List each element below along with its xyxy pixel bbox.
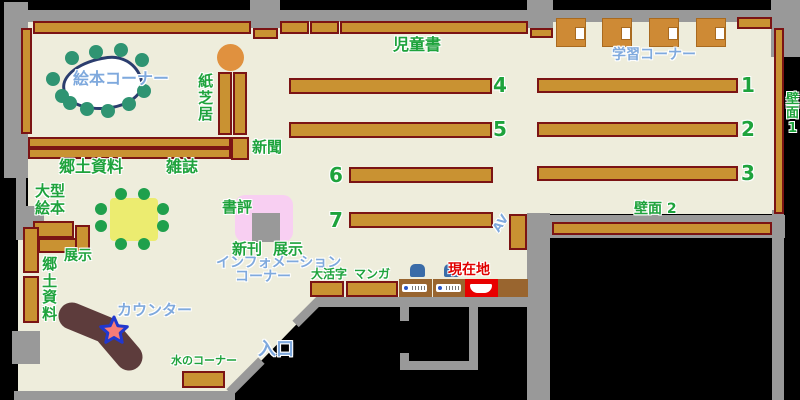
- opac-desk: [399, 279, 432, 297]
- library-floor-map: 絵本コーナー 紙芝居 新聞 児童書 学習コーナー 壁面1 郷土資料 雑誌 大型絵…: [0, 0, 800, 400]
- label-large-print: 大活字: [311, 268, 347, 281]
- shelf-manga: [346, 281, 398, 297]
- table-seat-dot: [95, 220, 107, 232]
- label-wall-2: 壁面 2: [634, 202, 677, 217]
- label-water-corner: 水のコーナー: [171, 355, 237, 367]
- shelf-number-2: 2: [741, 118, 755, 140]
- label-current-location: 現在地: [448, 263, 490, 278]
- wall-bottom: [14, 391, 235, 400]
- shelf-newspaper: [231, 137, 249, 160]
- study-desk: [556, 18, 586, 47]
- study-desk: [696, 18, 726, 47]
- label-wall-1: 壁面1: [785, 93, 800, 136]
- study-chair: [668, 27, 678, 40]
- seat-dot: [65, 51, 79, 65]
- shelf-large-print: [310, 281, 344, 297]
- label-manga: マンガ: [354, 268, 390, 281]
- shelf-top-wall-b: [280, 21, 309, 34]
- wall-under-desks: [318, 297, 550, 307]
- chair: [410, 264, 425, 277]
- label-information-line2: コーナー: [235, 270, 291, 285]
- shelf-top-wall-c: [310, 21, 339, 34]
- shelf-large-picture-books-1: [33, 221, 74, 238]
- wall-vestibule-left-upper: [400, 306, 409, 321]
- study-chair: [621, 27, 631, 40]
- shelf-4: [289, 78, 492, 94]
- seat-dot: [46, 72, 60, 86]
- seat-dot: [135, 53, 149, 67]
- table-seat-dot: [115, 238, 127, 250]
- label-magazines: 雑誌: [166, 158, 198, 176]
- label-large-picture-books: 大型絵本: [35, 183, 68, 216]
- shelf-water-corner: [182, 371, 225, 388]
- power-led-icon: [438, 286, 442, 290]
- seat-dot: [63, 96, 77, 110]
- shelf-top-wall-a: [33, 21, 251, 34]
- label-display-left: 展示: [64, 249, 92, 264]
- opac-terminal: [436, 284, 461, 292]
- table-seat-dot: [138, 238, 150, 250]
- seat-dot: [101, 104, 115, 118]
- opac-terminal: [402, 284, 427, 292]
- shelf-number-7: 7: [329, 209, 343, 231]
- shelf-top-wall-d: [340, 21, 528, 34]
- label-newspaper: 新聞: [252, 139, 282, 156]
- kamishibai-stool: [217, 44, 244, 71]
- label-counter: カウンター: [117, 302, 192, 319]
- wall-right-vertical: [527, 213, 550, 400]
- table-seat-dot: [157, 203, 169, 215]
- shelf-number-6: 6: [329, 164, 343, 186]
- power-led-icon: [404, 286, 408, 290]
- wall-left-thin: [16, 178, 26, 208]
- current-location-glyph: [470, 284, 492, 293]
- table-seat-dot: [157, 220, 169, 232]
- seat-dot: [80, 102, 94, 116]
- table-seat-dot: [95, 203, 107, 215]
- study-desk: [602, 18, 632, 47]
- shelf-top-right: [737, 17, 772, 29]
- shelf-number-1: 1: [741, 74, 755, 96]
- seat-dot: [122, 97, 136, 111]
- vents-icon: [446, 286, 459, 290]
- seat-dot: [89, 45, 103, 59]
- shelf-number-4: 4: [493, 74, 507, 96]
- new-books-display-table: [252, 213, 280, 242]
- shelf-under-pillar-2: [530, 28, 553, 38]
- shelf-3: [537, 166, 738, 181]
- shelf-wall-2: [552, 222, 772, 235]
- shelf-kamishibai-1: [218, 72, 232, 135]
- study-desk: [649, 18, 679, 47]
- label-picture-book-corner: 絵本コーナー: [73, 70, 169, 88]
- shelf-left-vertical: [21, 28, 32, 134]
- shelf-under-pillar-1: [253, 28, 278, 39]
- table-seat-dot: [115, 188, 127, 200]
- shelf-2: [537, 122, 738, 137]
- vents-icon: [412, 286, 425, 290]
- shelf-6: [349, 167, 493, 183]
- current-location-marker: [465, 279, 498, 297]
- shelf-local-materials-left-1: [23, 227, 39, 273]
- reading-table: [110, 198, 158, 241]
- shelf-local-materials-left-2: [23, 276, 39, 323]
- shelf-7: [349, 212, 493, 228]
- label-local-materials-left: 郷土資料: [41, 256, 58, 322]
- label-local-materials-top: 郷土資料: [59, 158, 123, 176]
- wall-right-strip: [772, 210, 784, 400]
- opac-desk: [433, 279, 465, 297]
- shelf-wall-1: [774, 28, 784, 214]
- label-book-reviews: 書評: [222, 199, 252, 216]
- label-study-corner: 学習コーナー: [612, 48, 696, 63]
- wall-pillar-top-1: [250, 0, 280, 28]
- label-childrens-books: 児童書: [393, 36, 441, 54]
- wall-pillar-top-2: [527, 0, 553, 28]
- wall-vestibule-bottom: [400, 361, 478, 370]
- seat-dot: [114, 43, 128, 57]
- study-chair: [715, 27, 725, 40]
- label-kamishibai: 紙芝居: [197, 73, 214, 123]
- side-desk: [498, 279, 528, 297]
- shelf-number-5: 5: [493, 118, 507, 140]
- study-chair: [575, 27, 585, 40]
- shelf-number-3: 3: [741, 162, 755, 184]
- label-entrance: 入口: [258, 340, 294, 360]
- shelf-local-materials-row1: [28, 137, 231, 148]
- shelf-5: [289, 122, 492, 138]
- shelf-1: [537, 78, 738, 93]
- shelf-kamishibai-2: [233, 72, 247, 135]
- wall-vestibule-right: [469, 306, 478, 370]
- wall-left-pillar-2: [12, 331, 40, 364]
- table-seat-dot: [138, 188, 150, 200]
